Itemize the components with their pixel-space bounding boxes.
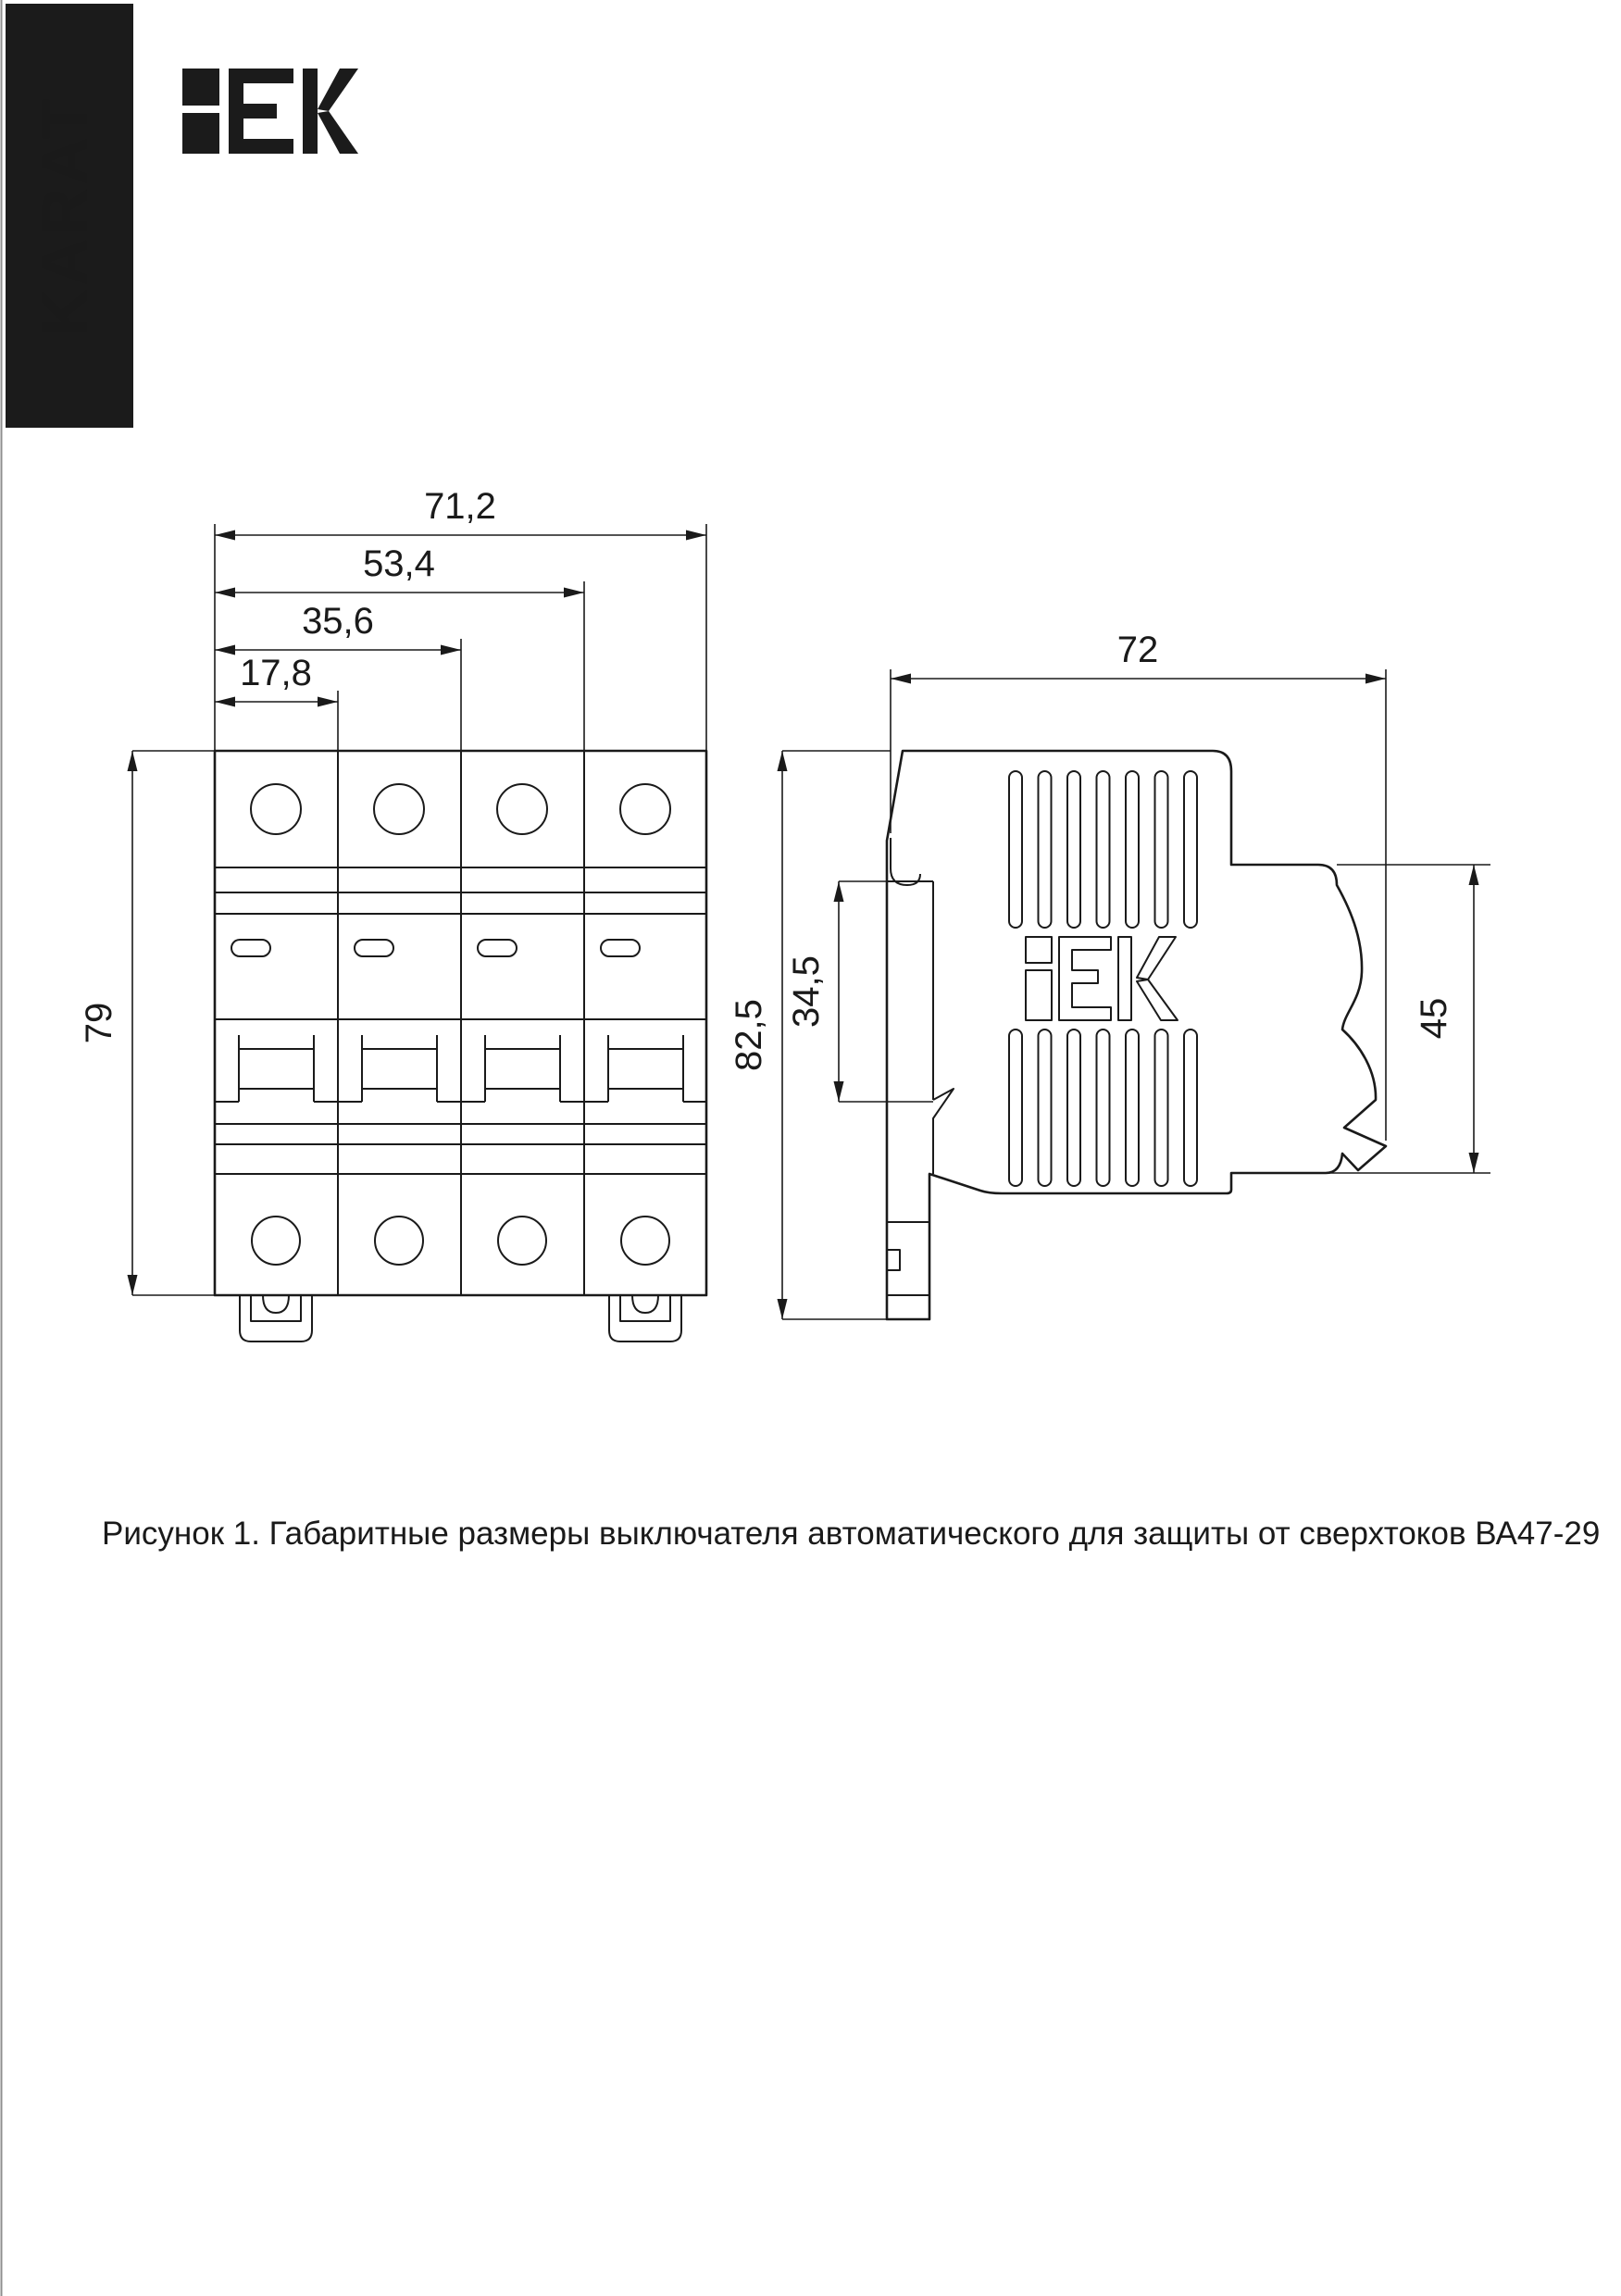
side-body-outline xyxy=(887,751,1386,1319)
dim-label-45: 45 xyxy=(1414,998,1454,1040)
din-clip-front xyxy=(240,1295,312,1341)
arrowhead xyxy=(564,588,584,598)
toggle-handle xyxy=(239,1035,314,1102)
terminal-screw xyxy=(497,784,547,834)
arrowhead xyxy=(891,674,911,684)
din-bottom-catch xyxy=(933,1089,954,1174)
dim-label-82-5: 82,5 xyxy=(729,999,769,1071)
dim-label-53-4: 53,4 xyxy=(363,543,435,584)
terminal-screw xyxy=(374,784,424,834)
rib xyxy=(1097,1029,1110,1186)
arrowhead xyxy=(686,530,706,541)
arrowhead xyxy=(128,751,138,771)
dim-label-35-6: 35,6 xyxy=(302,601,374,642)
rib xyxy=(1126,1029,1139,1186)
iek-logo-k-lower-arm xyxy=(318,111,358,154)
side-iek-logo: IEK xyxy=(1026,937,1178,1020)
dim-width-53-4: 53,4 xyxy=(215,543,584,598)
document-page: KARAT IEK xyxy=(0,0,1621,2296)
arrowhead xyxy=(128,1275,138,1295)
terminal-screw xyxy=(620,784,670,834)
iek-logo: IEK xyxy=(182,69,358,154)
side-logo-k-upper-arm xyxy=(1137,937,1176,980)
terminal-screw xyxy=(251,784,301,834)
arrowhead xyxy=(1469,865,1479,885)
arrowhead xyxy=(318,697,338,707)
toggle-handle xyxy=(608,1035,683,1102)
dim-height-45: 45 xyxy=(1328,865,1490,1173)
technical-drawing-canvas: KARAT IEK xyxy=(0,0,1621,2296)
figure-caption: Рисунок 1. Габаритные размеры выключател… xyxy=(102,1516,1600,1552)
arrowhead xyxy=(778,1299,788,1319)
din-clip-front xyxy=(609,1295,681,1341)
dim-width-17-8: 17,8 xyxy=(215,653,338,707)
dim-label-79: 79 xyxy=(79,1003,119,1044)
side-logo-e xyxy=(1059,937,1111,1020)
arrowhead xyxy=(441,645,461,655)
terminal-screw xyxy=(498,1217,546,1265)
rib xyxy=(1067,771,1080,928)
terminal-screw xyxy=(621,1217,669,1265)
arrowhead xyxy=(215,588,235,598)
dim-width-35-6: 35,6 xyxy=(215,601,461,655)
front-label-windows xyxy=(231,940,640,956)
side-logo-k-stem xyxy=(1118,937,1131,1020)
label-window xyxy=(478,940,517,956)
din-top-hook xyxy=(891,838,920,885)
iek-logo-i-dot xyxy=(182,69,219,106)
dim-height-82-5: 82,5 xyxy=(729,751,891,1319)
dim-width-71-2: 71,2 xyxy=(215,486,706,541)
rib xyxy=(1009,771,1022,928)
rib xyxy=(1039,771,1052,928)
label-window xyxy=(355,940,393,956)
arrowhead xyxy=(1365,674,1386,684)
dim-label-17-8: 17,8 xyxy=(240,653,312,693)
din-clip-inner xyxy=(620,1295,670,1321)
dim-label-72: 72 xyxy=(1117,630,1159,670)
toggle-handle xyxy=(362,1035,437,1102)
dim-label-34-5: 34,5 xyxy=(786,955,827,1028)
rib xyxy=(1155,1029,1168,1186)
dim-label-71-2: 71,2 xyxy=(424,486,496,527)
rib xyxy=(1155,771,1168,928)
iek-logo-e-bottom xyxy=(229,139,293,154)
label-window xyxy=(601,940,640,956)
label-window xyxy=(231,940,270,956)
terminal-screw xyxy=(252,1217,300,1265)
din-clip-arc xyxy=(263,1295,289,1313)
rib xyxy=(1009,1029,1022,1186)
iek-logo-k-upper-arm xyxy=(318,69,358,111)
arrowhead xyxy=(1469,1153,1479,1173)
arrowhead xyxy=(778,751,788,771)
rib xyxy=(1097,771,1110,928)
dim-height-79: 79 xyxy=(79,751,215,1295)
arrowhead xyxy=(215,645,235,655)
side-logo-k-lower-arm xyxy=(1137,980,1178,1020)
iek-logo-e-mid xyxy=(229,104,277,119)
rib xyxy=(1184,1029,1197,1186)
side-ribs-lower xyxy=(1009,1029,1197,1186)
side-logo-i-dot xyxy=(1026,937,1052,963)
arrowhead xyxy=(215,530,235,541)
arrowhead xyxy=(215,697,235,707)
arrowhead xyxy=(834,1081,844,1102)
iek-logo-k-stem xyxy=(303,69,318,154)
dim-height-34-5: 34,5 xyxy=(786,881,933,1102)
terminal-screw xyxy=(375,1217,423,1265)
rib xyxy=(1126,771,1139,928)
karat-banner-label: KARAT xyxy=(28,95,100,336)
side-ribs-upper xyxy=(1009,771,1197,928)
karat-banner: KARAT xyxy=(6,4,133,428)
front-view: 71,2 53,4 35,6 17,8 xyxy=(79,486,706,1341)
din-clip-inner xyxy=(251,1295,301,1321)
rib xyxy=(1067,1029,1080,1186)
arrowhead xyxy=(834,881,844,902)
rib xyxy=(1039,1029,1052,1186)
side-dimensions: 72 82,5 34,5 xyxy=(729,630,1490,1319)
rib xyxy=(1184,771,1197,928)
din-clip-arc xyxy=(632,1295,658,1313)
side-logo-i-body xyxy=(1026,970,1052,1020)
iek-logo-i-body xyxy=(182,113,219,154)
side-view: IEK 72 xyxy=(729,630,1490,1319)
toggle-handle xyxy=(485,1035,560,1102)
din-clip-notch xyxy=(887,1250,900,1270)
side-din-rail-details xyxy=(887,838,954,1295)
